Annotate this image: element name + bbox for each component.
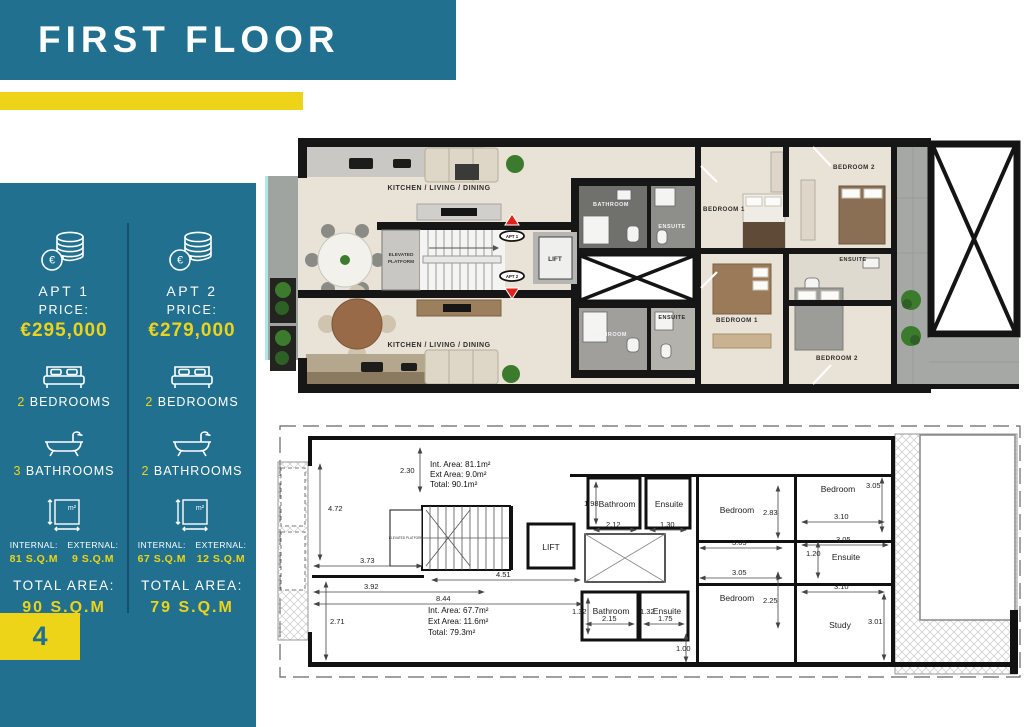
coins-icon: €	[167, 229, 217, 275]
svg-text:APT 1: APT 1	[506, 234, 519, 239]
label-ensuite-top: ENSUITE	[658, 224, 685, 230]
svg-text:Total: 90.1m²: Total: 90.1m²	[430, 480, 478, 489]
page-number-badge: 4	[0, 613, 80, 660]
label-bedroom2-bottom: BEDROOM 2	[816, 355, 858, 362]
yellow-accent-bar	[0, 92, 303, 110]
apt2-bedrooms: 2 BEDROOMS	[145, 395, 238, 409]
label-bathroom-top: BATHROOM	[593, 202, 629, 208]
apt2-name: APT 2	[166, 283, 217, 299]
apt1-areas: INTERNAL: 81 S.Q.M EXTERNAL: 9 S.Q.M	[0, 540, 128, 565]
room-label: Bathroom	[599, 499, 636, 509]
dim: 3.10	[834, 512, 849, 521]
room-label: Bedroom	[821, 484, 856, 494]
bed-icon	[42, 364, 86, 390]
plant	[502, 365, 520, 383]
apt1-external-value: 9 S.Q.M	[72, 553, 114, 565]
label-ensuite-bottom: ENSUITE	[658, 315, 685, 321]
apt2-bathrooms: 2 BATHROOMS	[141, 464, 242, 478]
label-ensuite-mid: ENSUITE	[839, 257, 866, 263]
dim: 3.05	[732, 538, 747, 547]
void-inner	[579, 254, 695, 302]
dim: 3.05	[732, 568, 747, 577]
wardrobe	[801, 180, 815, 240]
svg-text:Int. Area: 81.1m²: Int. Area: 81.1m²	[430, 460, 491, 469]
apt1-total-label: TOTAL AREA:	[13, 578, 115, 593]
dim: 2.25	[763, 596, 778, 605]
area-icon: m²	[46, 498, 82, 532]
apt1-bathrooms: 3 BATHROOMS	[13, 464, 114, 478]
dim: 1.32	[572, 607, 587, 616]
apt1-price: €295,000	[20, 320, 107, 342]
dim: 3.01	[868, 617, 883, 626]
svg-text:ELEVATED PLATFORM: ELEVATED PLATFORM	[389, 536, 424, 540]
dim: 1.98	[584, 499, 599, 508]
svg-text:ELEVATED: ELEVATED	[389, 252, 414, 258]
brochure-page: FIRST FLOOR € APT 1 PRICE: €295,000	[0, 0, 1024, 727]
dim: 2.83	[763, 508, 778, 517]
apt1-internal-value: 81 S.Q.M	[10, 553, 58, 565]
room-label: Bedroom	[720, 593, 755, 603]
dim: 2.71	[330, 617, 345, 626]
bedroom2-bottom-bed	[795, 288, 843, 350]
wardrobe	[771, 152, 783, 192]
sqm-glyph: m²	[196, 505, 205, 512]
apt2-price-label: PRICE:	[167, 303, 218, 317]
euro-glyph: €	[49, 255, 55, 267]
dim: 4.51	[496, 570, 511, 579]
svg-text:LIFT: LIFT	[542, 542, 559, 552]
apt1-price-label: PRICE:	[39, 303, 90, 317]
label-kitchen-top: KITCHEN / LIVING / DINING	[387, 185, 490, 192]
bed-icon	[170, 364, 214, 390]
rendered-floor-plan: ELEVATED PLATFORM APT 1 APT 2	[265, 138, 1024, 395]
svg-text:Ext Area: 9.0m²: Ext Area: 9.0m²	[430, 470, 487, 479]
dim: 3.73	[360, 556, 375, 565]
apt1-name: APT 1	[38, 283, 89, 299]
bathtub-icon	[42, 429, 86, 459]
apt2-internal-value: 67 S.Q.M	[138, 553, 186, 565]
room-label: Bathroom	[593, 606, 630, 616]
void-shaft	[931, 144, 1017, 334]
svg-text:APT 2: APT 2	[506, 274, 519, 279]
bathtub-icon	[170, 429, 214, 459]
plant	[506, 155, 524, 173]
apt1-bedrooms: 2 BEDROOMS	[17, 395, 110, 409]
room-label: Ensuite	[832, 552, 861, 562]
room-label: Ensuite	[653, 606, 682, 616]
wardrobe	[713, 334, 771, 348]
room-label: Ensuite	[655, 499, 684, 509]
svg-text:PLATFORM: PLATFORM	[388, 259, 414, 265]
lift: LIFT	[533, 232, 577, 284]
dim: 2.30	[400, 466, 415, 475]
left-balcony-drawing	[278, 462, 308, 640]
room-label: Bedroom	[720, 505, 755, 515]
dim: 3.10	[834, 582, 849, 591]
sofa-top	[425, 148, 498, 182]
dim: 2.12	[606, 520, 621, 529]
label-kitchen-bottom: KITCHEN / LIVING / DINING	[387, 342, 490, 349]
dim: 8.44	[436, 594, 451, 603]
bedroom1-bottom-bed	[713, 264, 771, 314]
apt2-areas: INTERNAL: 67 S.Q.M EXTERNAL: 12 S.Q.M	[128, 540, 256, 565]
dim: 3.05	[836, 535, 851, 544]
dim: 1.20	[806, 549, 821, 558]
page-title: FIRST FLOOR	[0, 19, 340, 61]
page-number: 4	[32, 621, 47, 652]
apt2-price: €279,000	[148, 320, 235, 342]
apt2-column: € APT 2 PRICE: €279,000 2 BEDROOMS	[128, 183, 256, 727]
svg-text:Ext Area: 11.6m²: Ext Area: 11.6m²	[428, 617, 489, 626]
coins-icon: €	[39, 229, 89, 275]
apt2-total-value: 79 S.Q.M	[150, 599, 234, 617]
sofa-bottom	[425, 350, 498, 384]
dim: 3.05	[866, 481, 881, 490]
svg-text:Total: 79.3m²: Total: 79.3m²	[428, 628, 476, 637]
elevated-platform: ELEVATED PLATFORM	[382, 230, 420, 290]
void-drawing	[585, 534, 665, 582]
apt2-external-label: EXTERNAL:	[196, 540, 247, 550]
dim: 3.92	[364, 582, 379, 591]
terrace-drawing	[895, 434, 1018, 674]
apt2-internal-label: INTERNAL:	[138, 540, 186, 550]
label-bathroom-bottom: BATHROOM	[591, 332, 627, 338]
bedroom1-top-bed	[743, 194, 785, 248]
left-balcony	[265, 176, 298, 371]
dim: 1.00	[676, 644, 691, 653]
stair-drawing	[422, 506, 510, 570]
bedroom2-top-bed	[839, 186, 885, 244]
label-bedroom1-bottom: BEDROOM 1	[716, 317, 758, 324]
label-bedroom1-top: BEDROOM 1	[703, 206, 745, 213]
dim: 4.72	[328, 504, 343, 513]
label-bedroom2-top: BEDROOM 2	[833, 164, 875, 171]
apt2-total-label: TOTAL AREA:	[141, 578, 243, 593]
sqm-glyph: m²	[68, 505, 77, 512]
platform-drawing: ELEVATED PLATFORM	[389, 510, 424, 566]
dim: 1.30	[660, 520, 675, 529]
technical-floor-plan: ELEVATED PLATFORM LIFT	[270, 420, 1024, 707]
svg-text:LIFT: LIFT	[548, 256, 562, 263]
apt1-external-label: EXTERNAL:	[68, 540, 119, 550]
euro-glyph: €	[177, 255, 183, 267]
room-label: Study	[829, 620, 851, 630]
apt1-internal-label: INTERNAL:	[10, 540, 58, 550]
staircase	[420, 230, 505, 290]
area-icon: m²	[174, 498, 210, 532]
header-banner: FIRST FLOOR	[0, 0, 456, 80]
svg-text:Int. Area: 67.7m²: Int. Area: 67.7m²	[428, 606, 489, 615]
lift-drawing: LIFT	[528, 524, 574, 568]
apt2-external-value: 12 S.Q.M	[197, 553, 245, 565]
